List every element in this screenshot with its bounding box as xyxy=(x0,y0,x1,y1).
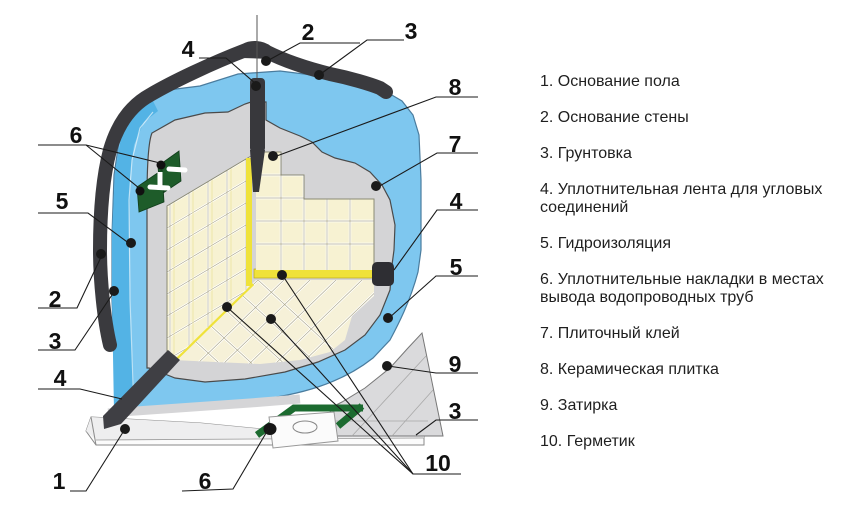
svg-text:4: 4 xyxy=(54,365,67,391)
svg-text:2: 2 xyxy=(49,286,62,312)
svg-text:1: 1 xyxy=(53,468,66,494)
svg-text:4: 4 xyxy=(182,36,195,62)
svg-text:6: 6 xyxy=(199,468,212,494)
svg-text:9: 9 xyxy=(449,351,462,377)
svg-text:4: 4 xyxy=(450,188,463,214)
svg-text:10: 10 xyxy=(425,450,451,476)
svg-text:8: 8 xyxy=(449,74,462,100)
svg-text:7: 7 xyxy=(449,131,462,157)
svg-text:3: 3 xyxy=(49,328,62,354)
svg-text:2: 2 xyxy=(302,19,315,45)
svg-text:6: 6 xyxy=(70,122,83,148)
svg-text:5: 5 xyxy=(450,254,463,280)
svg-text:3: 3 xyxy=(405,18,418,44)
svg-text:3: 3 xyxy=(449,398,462,424)
svg-text:5: 5 xyxy=(56,188,69,214)
